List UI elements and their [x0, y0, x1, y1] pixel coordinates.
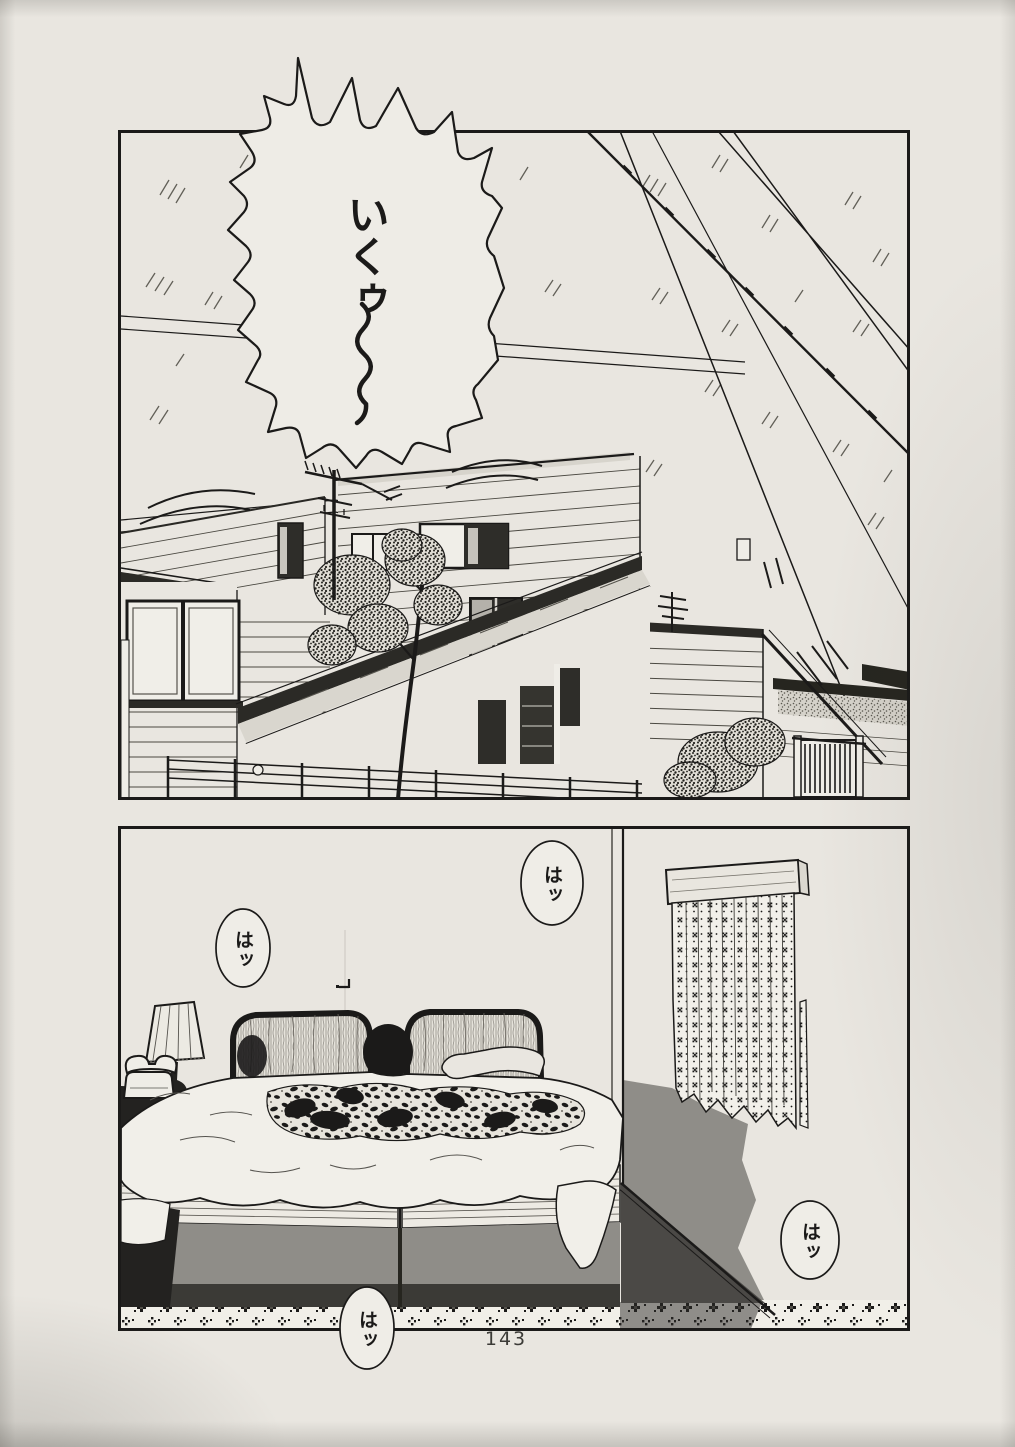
sheet-overhang [121, 1199, 170, 1245]
balloon-ha-top-text: はッ [540, 849, 564, 921]
page-number: 143 [468, 1328, 544, 1350]
headboard-left [233, 1013, 371, 1078]
leopard-garment [267, 1083, 585, 1140]
curtain [666, 860, 809, 1128]
balloon-ha-right-text: はッ [798, 1206, 822, 1278]
balloon-ha-bottom-text: はッ [355, 1294, 379, 1366]
fence-lamp [253, 765, 263, 775]
window [123, 601, 243, 708]
balloon-ha-left-text: はッ [231, 914, 255, 986]
curtain-side-strip [800, 1000, 808, 1128]
manga-page: いくゥ はッ はッ はッ はッ 143 [0, 0, 1015, 1447]
page-art [0, 0, 1015, 1447]
drain-pipe [121, 640, 129, 799]
balloon-iku-text: いくゥ [341, 156, 389, 356]
gate [792, 736, 866, 797]
